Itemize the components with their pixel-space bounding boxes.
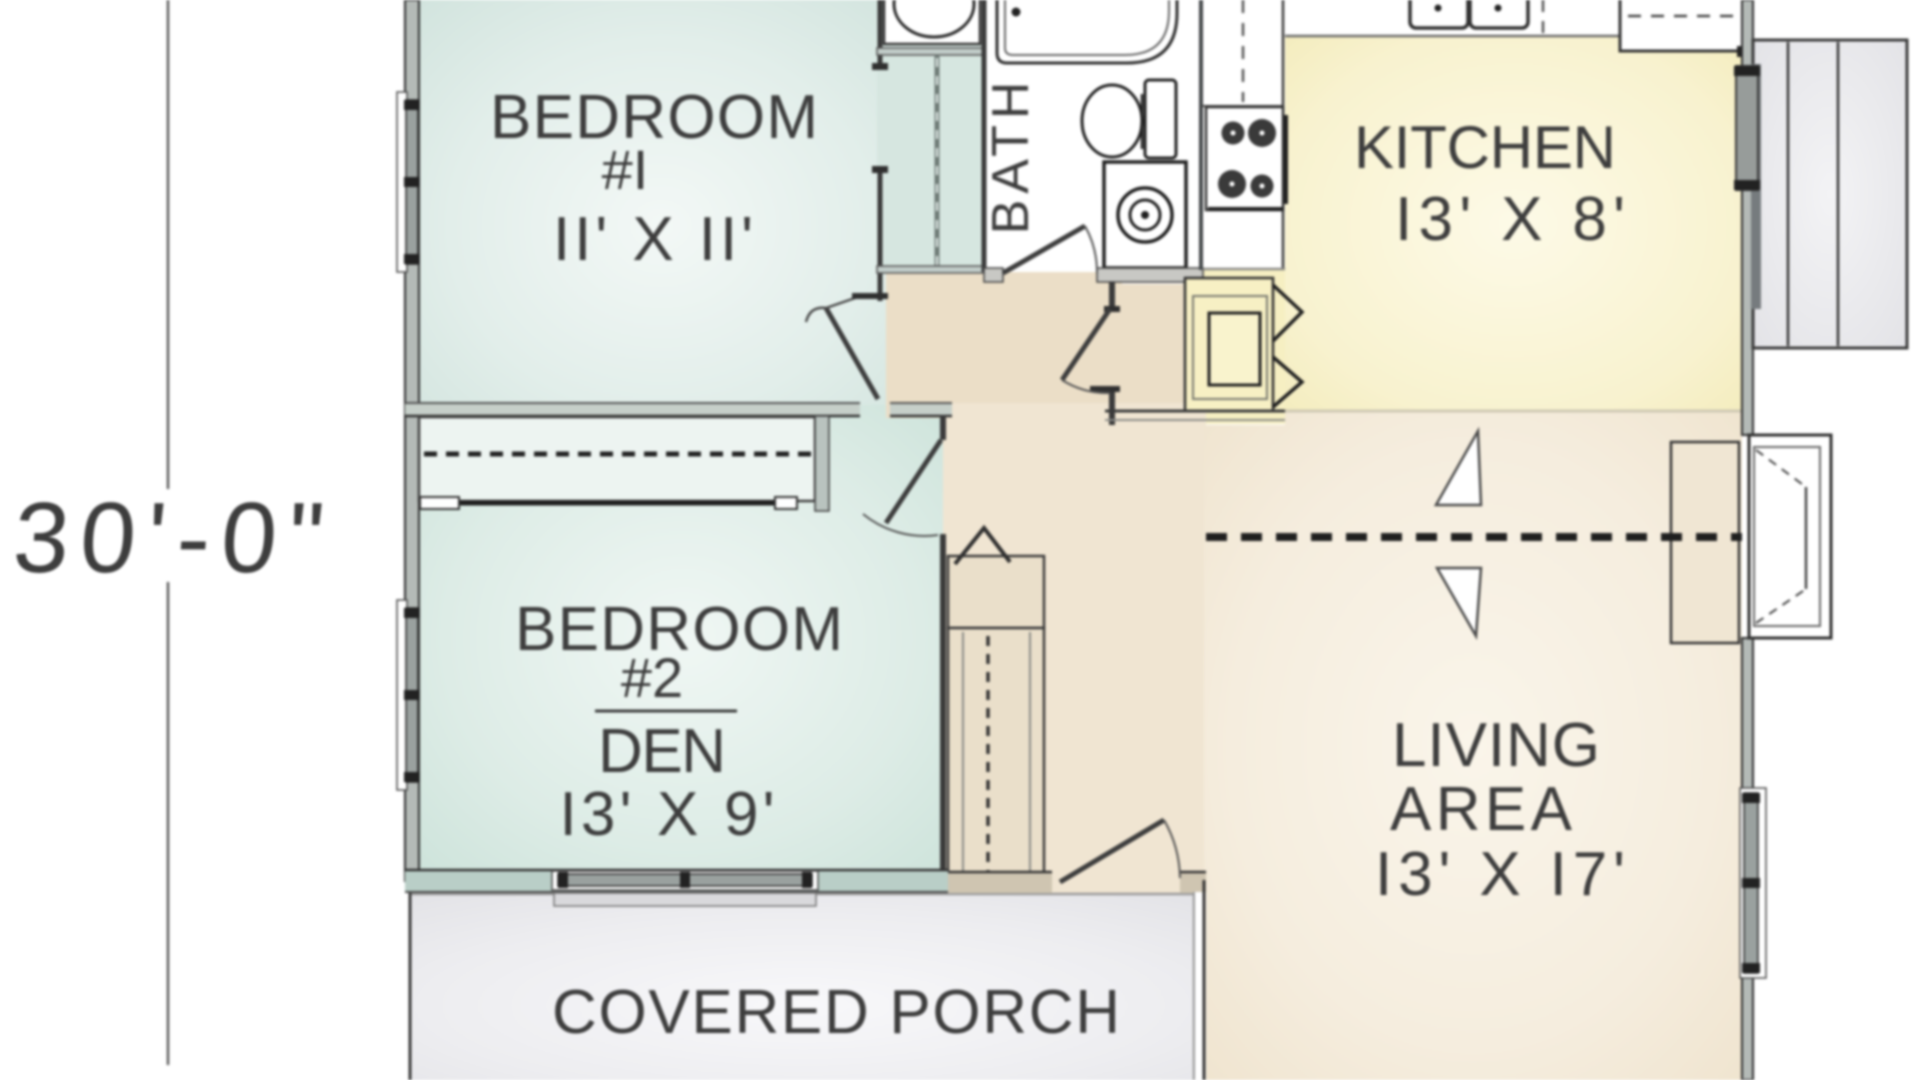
svg-text:BEDROOM: BEDROOM bbox=[490, 83, 820, 152]
svg-text:BATH: BATH bbox=[982, 76, 1040, 235]
svg-text:II' X II': II' X II' bbox=[553, 205, 753, 274]
svg-text:I3' X 8': I3' X 8' bbox=[1395, 185, 1625, 254]
svg-text:#2: #2 bbox=[621, 646, 683, 709]
svg-text:COVERED PORCH: COVERED PORCH bbox=[552, 978, 1120, 1047]
svg-text:30'-0": 30'-0" bbox=[10, 482, 339, 594]
svg-text:#I: #I bbox=[602, 138, 649, 201]
svg-text:I3' X 9': I3' X 9' bbox=[560, 780, 775, 849]
svg-text:I3' X I7': I3' X I7' bbox=[1375, 840, 1625, 909]
svg-text:LIVING: LIVING bbox=[1392, 711, 1600, 780]
svg-text:KITCHEN: KITCHEN bbox=[1354, 114, 1616, 181]
svg-text:DEN: DEN bbox=[598, 717, 726, 786]
